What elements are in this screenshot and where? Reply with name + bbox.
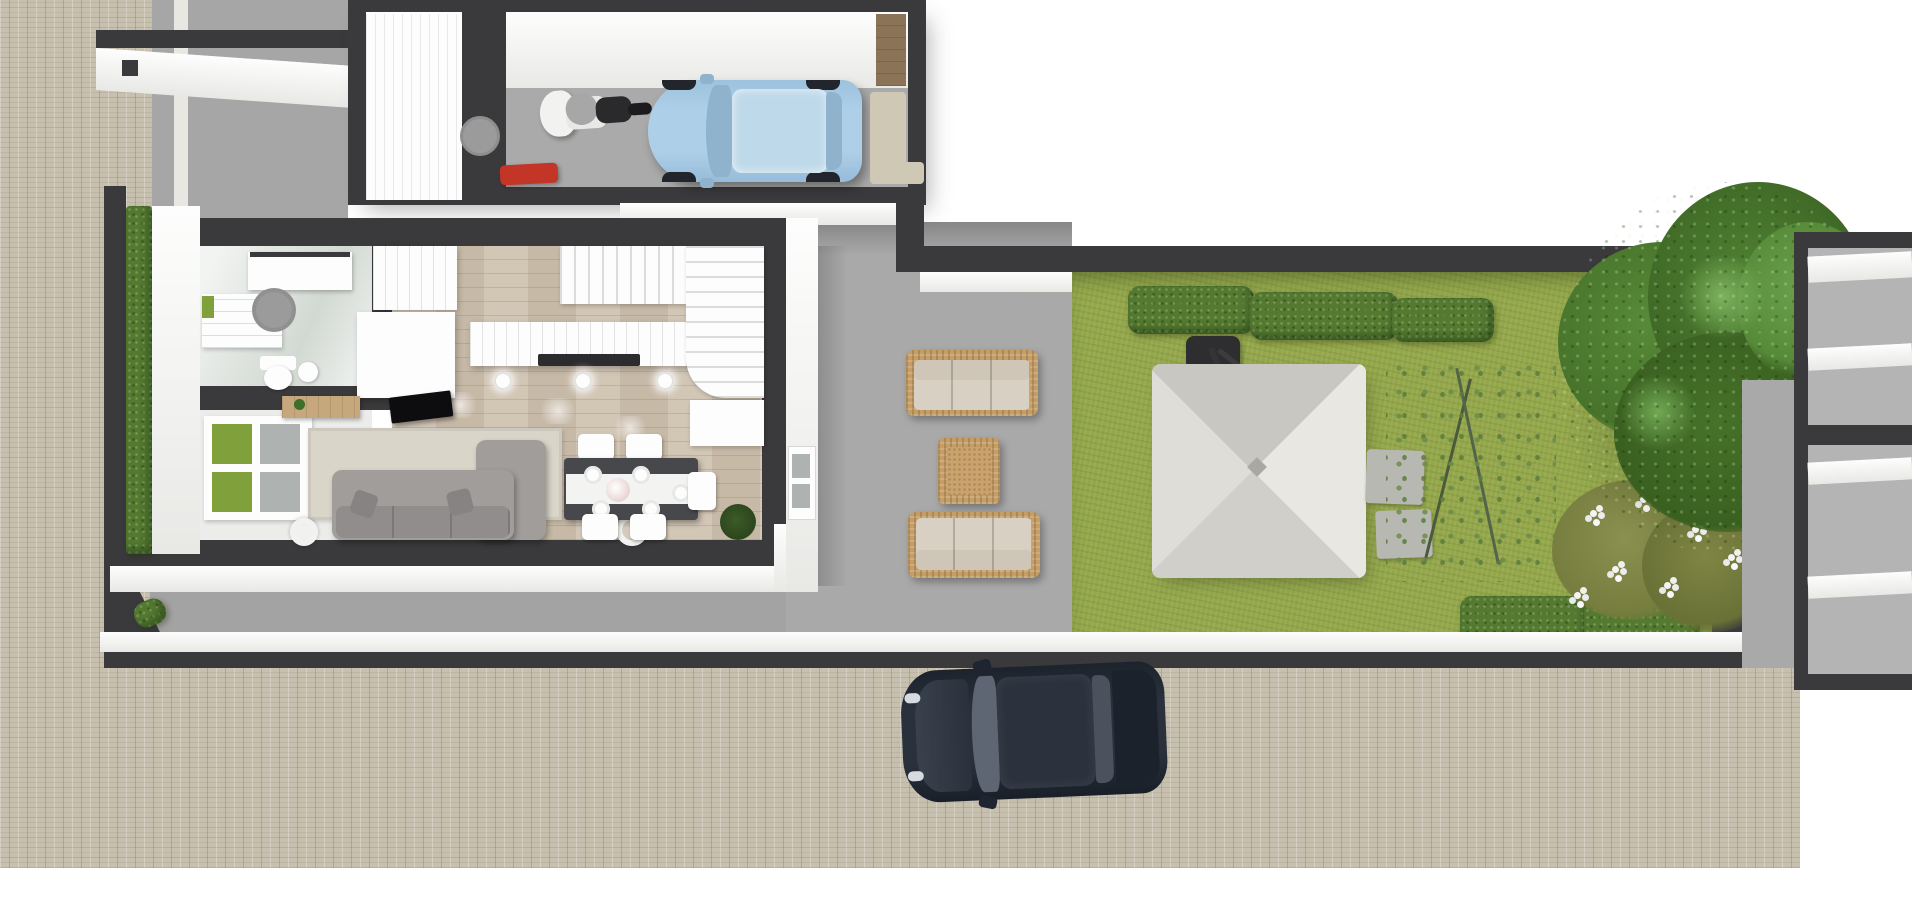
pendant-light-1 [494,372,512,390]
toilet-bowl [264,366,292,390]
dark-car-roof [996,673,1097,789]
hedge-north-1 [1128,286,1254,334]
twiggy-shrub [1386,356,1556,582]
patio-sofa-south [908,512,1040,578]
floor-light-glow-2 [536,398,580,424]
front-door-pane-tr [260,424,300,464]
blue-car-glass-roof [732,89,828,173]
blue-car-windshield [706,85,732,177]
dark-car-headlight-right [908,771,924,782]
hedge-strip-west [126,206,152,554]
shrub-flower-7 [1574,592,1581,599]
twiggy-leaves [1386,356,1556,582]
neighbor-divider [1794,425,1912,445]
patio-sofa-north [906,350,1038,416]
hedge-north-3 [1392,298,1494,342]
shrub-flower-4 [1728,554,1735,561]
bathroom-stool [252,288,296,332]
blue-car-wheel-rr [806,172,840,182]
hedge-north-2 [1250,292,1398,340]
blue-car-mirror-bottom [700,178,714,188]
neighbor-plank-1 [1807,251,1912,282]
ceiling-lamp-storage [460,116,500,156]
blue-car-wheel-fr [662,172,696,182]
property-wall-west [104,186,126,566]
floorplan-render [0,0,1912,923]
dark-car-headlight-left [904,693,920,704]
plate-1 [584,466,602,484]
garage-storage-boxes [876,14,906,86]
stair-flight [560,246,686,304]
shrub-flower-6 [1664,582,1671,589]
front-wall-top [100,632,1742,652]
blue-car-mirror-top [700,74,714,84]
front-door-pane-tl [212,424,252,464]
blue-car-rear-glass [826,92,842,170]
patio-coffee-table-top [947,447,991,495]
patio-sofa-south-backrest [916,550,1032,570]
cooktop [538,354,640,366]
plate-2 [632,466,650,484]
sideboard-plant [294,399,305,410]
house-south-face [110,566,774,592]
storage-room-door [366,14,462,200]
patio-sofa-north-backrest [914,360,1030,380]
centerpiece-flowers [606,478,630,502]
patio-coffee-table [938,438,1000,504]
dining-chair-bottom-2 [630,514,666,540]
entry-door-pane-bottom [792,484,810,508]
front-door-pane-br [260,472,300,512]
dining-chair-bottom-1 [582,514,618,540]
neighbor-wall-top [96,30,352,48]
house-south-wall [104,540,788,566]
corner-plant [720,504,756,540]
neighbor-wall-notch [122,60,138,76]
dark-car [899,660,1169,803]
dark-car-trunk [1111,669,1160,787]
dining-chair-end [688,472,716,510]
house-east-face [786,218,818,592]
dining-chair-top-2 [626,434,662,460]
dining-chair-top-1 [578,434,614,460]
stair-winder [686,246,764,398]
blue-car-wheel-fl [662,80,696,90]
bathroom-window-green [202,296,214,318]
blue-hatchback [648,80,862,182]
house-north-wall [104,218,788,246]
front-wall-face [106,652,1744,668]
shrub-flower-5 [1612,566,1619,573]
house-east-wall [762,218,788,548]
front-door-pane-bl [212,472,252,512]
floor-lamp-1 [290,518,318,546]
scooter [538,74,655,152]
washing-machine [248,252,352,290]
pendant-light-2 [574,372,592,390]
washing-machine-top-edge [250,252,350,257]
stair-cupboard [690,400,764,446]
kitchen-island [357,312,455,398]
pendant-light-3 [656,372,674,390]
bathroom-sink [298,362,318,382]
red-toolbox [500,162,559,185]
house-west-face [152,206,200,554]
kitchen-upper-cabinet [373,246,457,310]
entry-door-pane-top [792,454,810,478]
garage-bench-foot [870,162,924,184]
house-east-shadow [818,246,848,586]
